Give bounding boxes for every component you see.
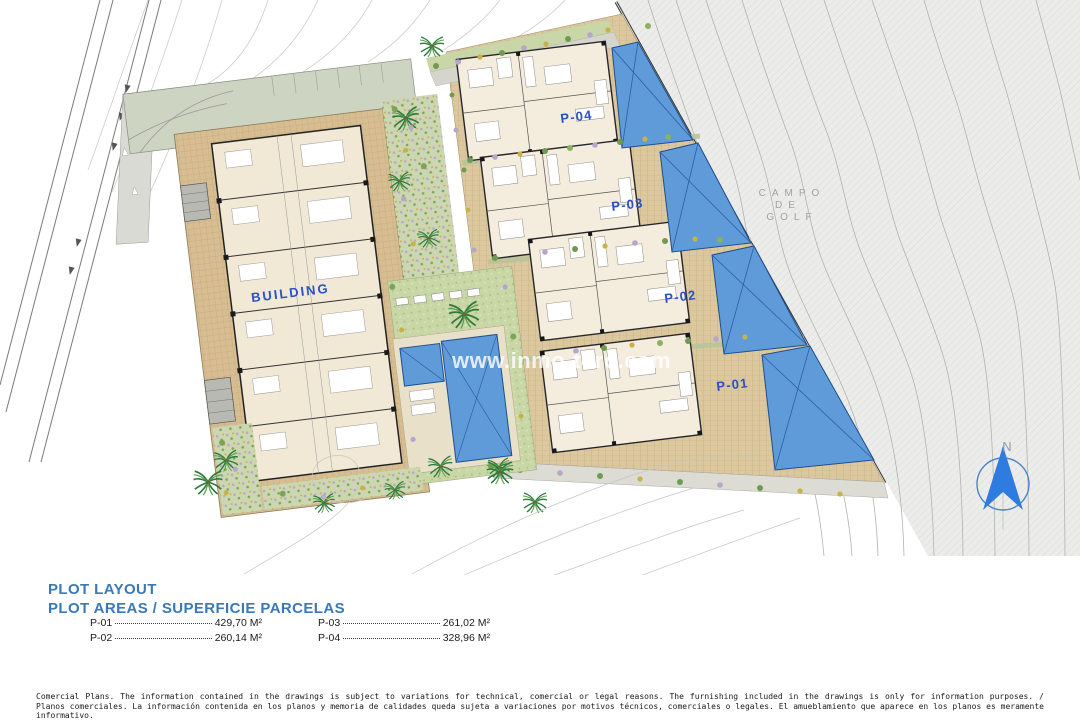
plot-area-list: P-01 429,70 M² P-03 261,02 M² P-02 260,1… <box>90 617 490 644</box>
entry-area: 260,14 M² <box>215 632 262 644</box>
plot-layout-title: PLOT LAYOUT <box>48 580 345 599</box>
golf-label-line3: GOLF <box>766 212 817 223</box>
plot-areas-subtitle: PLOT AREAS / SUPERFICIE PARCELAS <box>48 599 345 618</box>
dotted-leader <box>343 638 440 639</box>
disclaimer-line3: informativo. <box>36 711 1044 720</box>
legend: PLOT LAYOUT PLOT AREAS / SUPERFICIE PARC… <box>48 580 345 618</box>
entry-label: P-01 <box>90 617 112 629</box>
disclaimer-line1: Comercial Plans. The information contain… <box>36 692 1044 702</box>
watermark: www.inmo-toro.com <box>451 348 671 373</box>
entry-area: 328,96 M² <box>443 632 490 644</box>
entry-label: P-03 <box>318 617 340 629</box>
entry-label: P-04 <box>318 632 340 644</box>
entry-area: 261,02 M² <box>443 617 490 629</box>
site-plan: CAMPO DE GOLF <box>0 0 1080 575</box>
plot-area-entry-p01: P-01 429,70 M² <box>90 617 262 629</box>
disclaimer-line2: Planos comerciales. La información conte… <box>36 702 1044 712</box>
dotted-leader <box>343 623 440 624</box>
golf-label-line2: DE <box>775 200 801 211</box>
plot-area-entry-p02: P-02 260,14 M² <box>90 632 262 644</box>
page: CAMPO DE GOLF <box>0 0 1080 720</box>
plot-area-entry-p04: P-04 328,96 M² <box>318 632 490 644</box>
plot-area-entry-p03: P-03 261,02 M² <box>318 617 490 629</box>
disclaimer: Comercial Plans. The information contain… <box>36 692 1044 720</box>
dotted-leader <box>115 638 212 639</box>
golf-label-line1: CAMPO <box>759 188 826 199</box>
dotted-leader <box>115 623 212 624</box>
north-label: N <box>1002 439 1011 454</box>
entry-label: P-02 <box>90 632 112 644</box>
communal-area <box>386 266 537 485</box>
entry-area: 429,70 M² <box>215 617 262 629</box>
